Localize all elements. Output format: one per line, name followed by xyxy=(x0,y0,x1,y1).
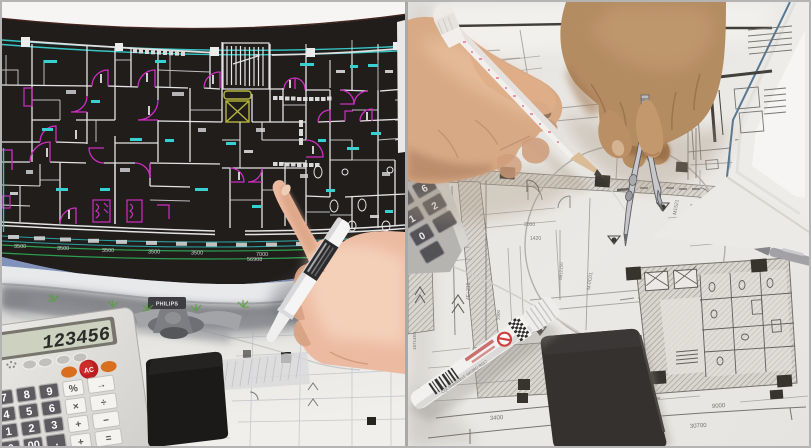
svg-text:3500: 3500 xyxy=(57,246,69,252)
svg-text:3500: 3500 xyxy=(14,244,26,250)
svg-text:AC: AC xyxy=(84,367,95,375)
svg-text:3500: 3500 xyxy=(148,250,160,256)
svg-text:3500: 3500 xyxy=(102,248,114,254)
svg-text:00: 00 xyxy=(27,439,41,446)
svg-text:3500: 3500 xyxy=(191,251,203,257)
svg-text:→: → xyxy=(95,379,106,391)
svg-text:PHILIPS: PHILIPS xyxy=(156,302,179,308)
svg-text:%: % xyxy=(68,383,78,395)
svg-text:7000: 7000 xyxy=(256,252,268,258)
